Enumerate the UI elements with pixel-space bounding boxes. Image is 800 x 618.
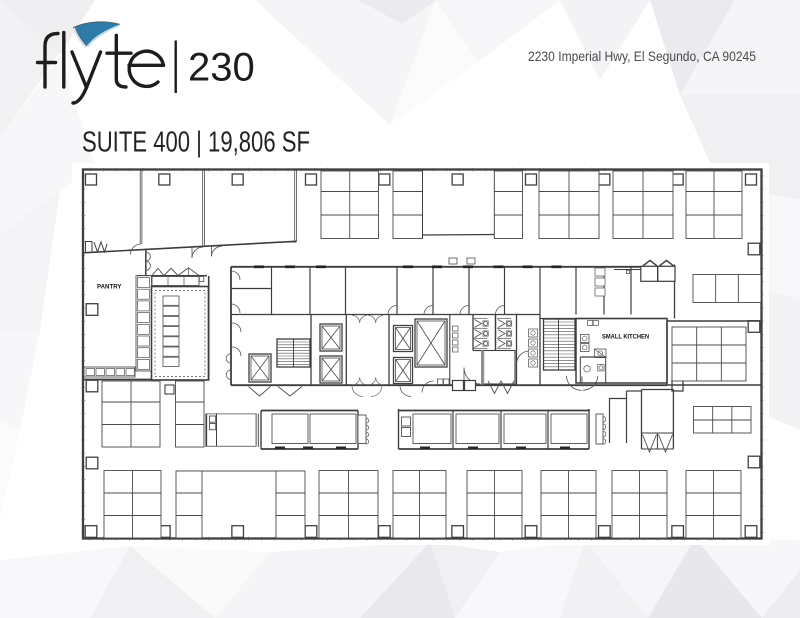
svg-text:SUITE 400 | 19,806 SF: SUITE 400 | 19,806 SF: [82, 127, 310, 159]
svg-text:230: 230: [188, 46, 255, 90]
svg-text:PANTRY: PANTRY: [97, 284, 122, 291]
svg-text:2230 Imperial Hwy, El Segundo,: 2230 Imperial Hwy, El Segundo, CA 90245: [528, 48, 756, 64]
svg-text:SMALL KITCHEN: SMALL KITCHEN: [602, 334, 649, 341]
